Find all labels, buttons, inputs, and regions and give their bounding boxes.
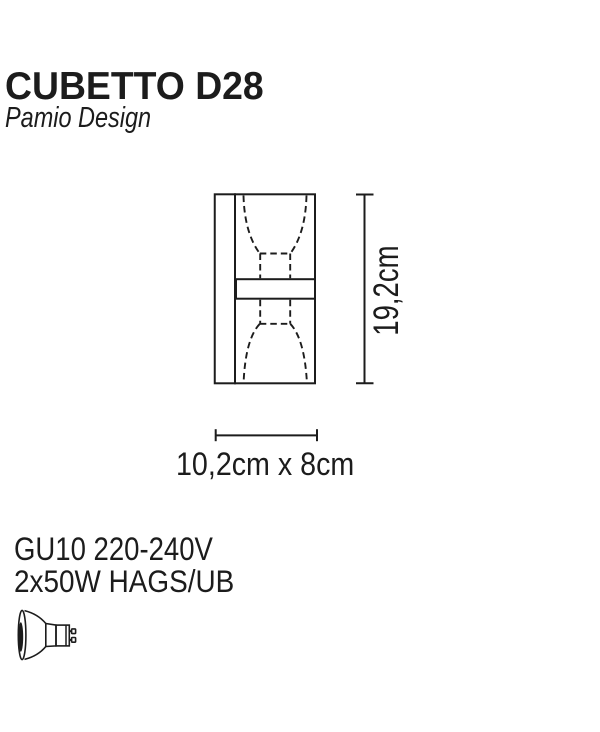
svg-text:19,2cm: 19,2cm bbox=[367, 246, 406, 336]
